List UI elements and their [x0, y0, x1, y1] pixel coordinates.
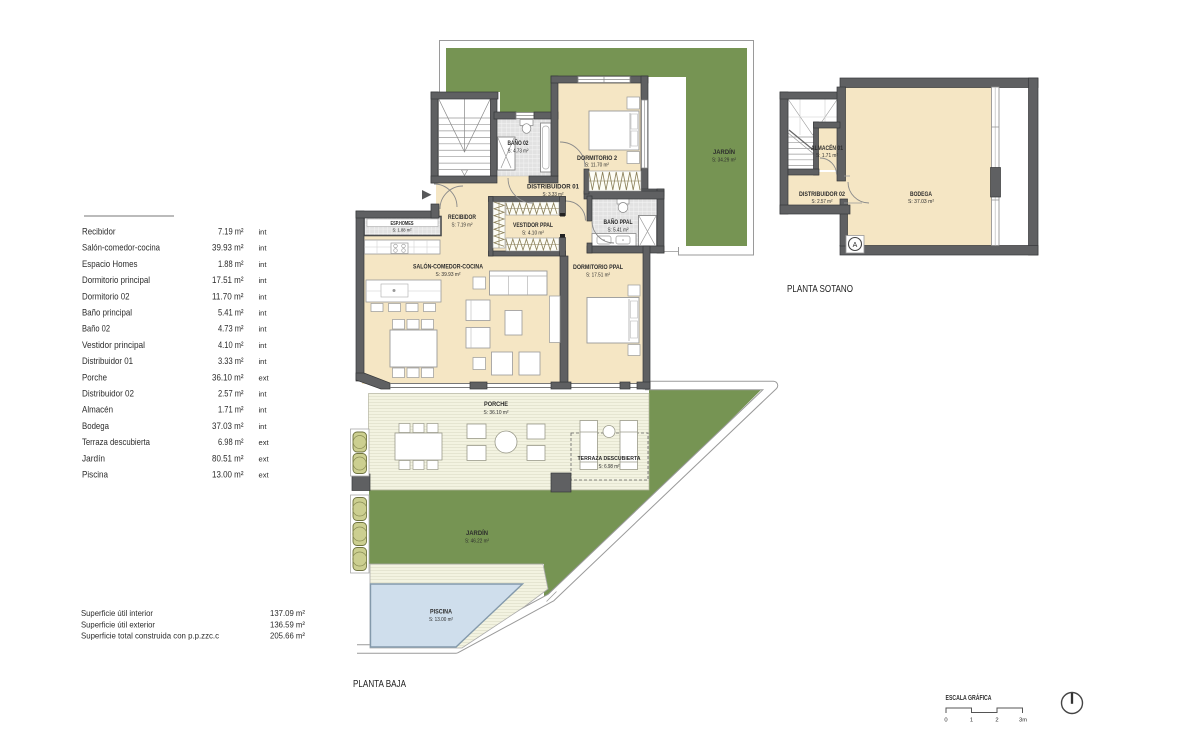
svg-text:S: 3.33 m²: S: 3.33 m² — [543, 192, 564, 198]
svg-text:S: 37.03 m²: S: 37.03 m² — [908, 199, 934, 205]
svg-text:DORMITORIO PPAL: DORMITORIO PPAL — [573, 265, 623, 271]
svg-text:int: int — [259, 406, 268, 415]
svg-text:11.70 m²: 11.70 m² — [212, 291, 244, 301]
svg-text:Distribuidor 02: Distribuidor 02 — [82, 389, 134, 399]
svg-text:int: int — [259, 276, 268, 285]
svg-text:Baño 02: Baño 02 — [82, 324, 110, 334]
svg-text:S: 13.00 m²: S: 13.00 m² — [429, 617, 453, 623]
svg-text:ext: ext — [259, 471, 270, 480]
svg-text:ESP.HOMES: ESP.HOMES — [391, 221, 415, 227]
svg-text:1.88 m²: 1.88 m² — [218, 259, 244, 269]
svg-text:ext: ext — [259, 373, 270, 382]
svg-text:VESTIDOR PPAL: VESTIDOR PPAL — [513, 223, 553, 229]
svg-text:3.33 m²: 3.33 m² — [218, 356, 244, 366]
svg-text:Superficie total construida co: Superficie total construida con p.p.zzc.… — [81, 631, 219, 641]
svg-text:Baño principal: Baño principal — [82, 308, 132, 318]
svg-text:S: 4.10 m²: S: 4.10 m² — [522, 231, 544, 237]
svg-text:TERRAZA DESCUBIERTA: TERRAZA DESCUBIERTA — [578, 456, 642, 462]
svg-text:ext: ext — [259, 454, 270, 463]
svg-text:Dormitorio principal: Dormitorio principal — [82, 275, 150, 285]
svg-text:37.03 m²: 37.03 m² — [212, 421, 244, 431]
svg-text:int: int — [259, 341, 268, 350]
svg-text:PLANTA BAJA: PLANTA BAJA — [353, 678, 406, 690]
svg-text:2.57 m²: 2.57 m² — [218, 389, 244, 399]
svg-text:A: A — [853, 242, 858, 249]
svg-text:ESCALA GRÁFICA: ESCALA GRÁFICA — [946, 693, 992, 702]
svg-text:PISCINA: PISCINA — [430, 610, 453, 616]
svg-text:int: int — [259, 260, 268, 269]
svg-text:PORCHE: PORCHE — [484, 402, 508, 408]
svg-text:Porche: Porche — [82, 372, 107, 382]
svg-text:Superficie útil exterior: Superficie útil exterior — [81, 619, 155, 629]
svg-text:4.73 m²: 4.73 m² — [218, 324, 244, 334]
svg-text:int: int — [259, 228, 268, 237]
svg-text:1: 1 — [970, 718, 973, 724]
svg-text:DISTRIBUIDOR 01: DISTRIBUIDOR 01 — [527, 185, 580, 191]
svg-text:6.98 m²: 6.98 m² — [218, 437, 244, 447]
svg-text:S: 2.57 m²: S: 2.57 m² — [812, 199, 833, 205]
svg-text:36.10 m²: 36.10 m² — [212, 372, 244, 382]
svg-text:205.66 m²: 205.66 m² — [270, 631, 305, 641]
svg-text:136.59 m²: 136.59 m² — [270, 619, 305, 629]
svg-text:Dormitorio 02: Dormitorio 02 — [82, 291, 130, 301]
svg-text:DISTRIBUIDOR 02: DISTRIBUIDOR 02 — [799, 192, 846, 198]
svg-text:2: 2 — [995, 718, 998, 724]
svg-text:Vestidor principal: Vestidor principal — [82, 340, 145, 350]
svg-text:Bodega: Bodega — [82, 421, 110, 431]
svg-text:DORMITORIO 2: DORMITORIO 2 — [577, 156, 618, 162]
svg-text:BAÑO 02: BAÑO 02 — [508, 140, 530, 147]
svg-text:13.00 m²: 13.00 m² — [212, 470, 244, 480]
svg-text:SALÓN-COMEDOR-COCINA: SALÓN-COMEDOR-COCINA — [413, 263, 484, 271]
svg-text:Recibidor: Recibidor — [82, 227, 116, 237]
svg-text:int: int — [259, 325, 268, 334]
svg-text:S: 39.93 m²: S: 39.93 m² — [436, 272, 461, 278]
svg-text:int: int — [259, 390, 268, 399]
svg-text:Superficie útil interior: Superficie útil interior — [81, 608, 153, 618]
svg-text:80.51 m²: 80.51 m² — [212, 453, 244, 463]
svg-text:7.19 m²: 7.19 m² — [218, 227, 244, 237]
svg-text:0: 0 — [944, 718, 947, 724]
svg-text:S: 1.88 m²: S: 1.88 m² — [393, 228, 412, 234]
svg-text:Jardín: Jardín — [82, 453, 105, 463]
svg-text:int: int — [259, 292, 268, 301]
svg-text:39.93 m²: 39.93 m² — [212, 243, 244, 253]
svg-text:S: 46.22 m²: S: 46.22 m² — [465, 539, 489, 545]
svg-text:1.71 m²: 1.71 m² — [218, 405, 244, 415]
svg-text:BAÑO PPAL: BAÑO PPAL — [604, 219, 633, 226]
svg-text:137.09 m²: 137.09 m² — [270, 608, 305, 618]
svg-text:S: 36.10 m²: S: 36.10 m² — [484, 410, 509, 416]
svg-text:int: int — [259, 422, 268, 431]
svg-text:ext: ext — [259, 438, 270, 447]
svg-text:Salón-comedor-cocina: Salón-comedor-cocina — [82, 243, 161, 253]
svg-text:Piscina: Piscina — [82, 470, 109, 480]
svg-text:S: 4.73 m²: S: 4.73 m² — [508, 149, 529, 155]
svg-text:Terraza descubierta: Terraza descubierta — [82, 437, 151, 447]
svg-text:BODEGA: BODEGA — [910, 192, 933, 198]
svg-text:PLANTA SOTANO: PLANTA SOTANO — [787, 283, 853, 295]
svg-text:S: 11.70 m²: S: 11.70 m² — [585, 163, 609, 169]
svg-text:JARDÍN: JARDÍN — [466, 529, 488, 537]
svg-text:S: 17.51 m²: S: 17.51 m² — [586, 273, 610, 279]
svg-text:JARDÍN: JARDÍN — [713, 148, 735, 156]
svg-text:17.51 m²: 17.51 m² — [212, 275, 244, 285]
svg-text:4.10 m²: 4.10 m² — [218, 340, 244, 350]
svg-text:RECIBIDOR: RECIBIDOR — [448, 215, 477, 221]
svg-text:3m: 3m — [1019, 718, 1027, 724]
svg-text:Distribuidor 01: Distribuidor 01 — [82, 356, 133, 366]
svg-text:S: 34.29 m²: S: 34.29 m² — [712, 158, 736, 164]
svg-text:5.41 m²: 5.41 m² — [218, 308, 244, 318]
svg-text:S: 5.41 m²: S: 5.41 m² — [608, 228, 629, 234]
svg-text:int: int — [259, 357, 268, 366]
svg-text:S: 7.19 m²: S: 7.19 m² — [452, 223, 473, 229]
svg-text:Espacio Homes: Espacio Homes — [82, 259, 138, 269]
svg-text:Almacén: Almacén — [82, 405, 113, 415]
svg-text:int: int — [259, 244, 268, 253]
svg-text:S: 1.71 m²: S: 1.71 m² — [816, 153, 838, 159]
svg-text:S: 6.98 m²: S: 6.98 m² — [599, 464, 620, 470]
svg-text:int: int — [259, 309, 268, 318]
svg-text:ALMACÉN 01: ALMACÉN 01 — [811, 144, 844, 152]
